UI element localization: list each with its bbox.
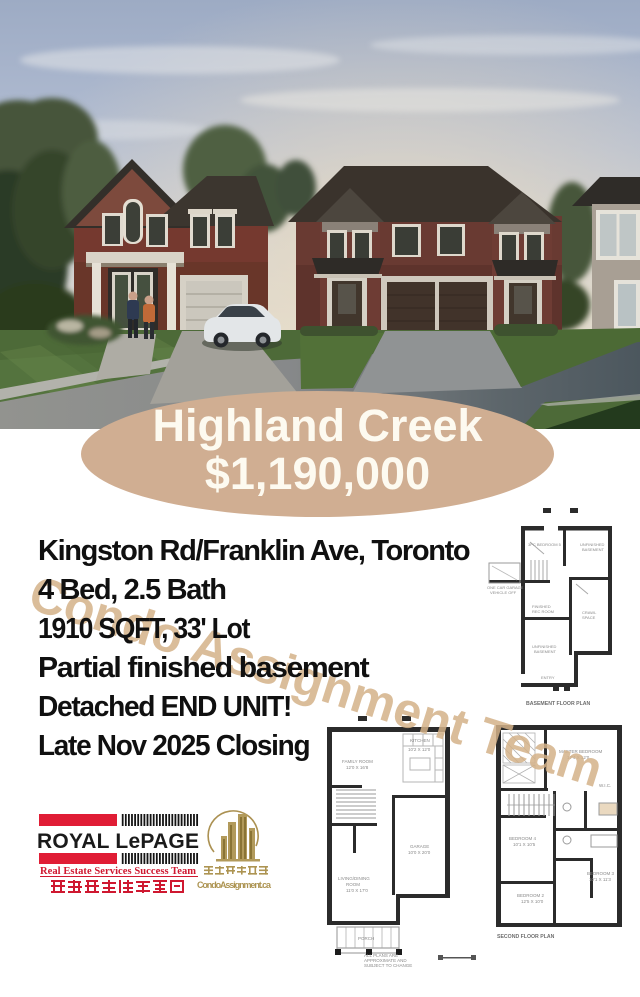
svg-text:ROOM: ROOM	[346, 882, 360, 887]
svg-text:11'0 X 17'0: 11'0 X 17'0	[346, 888, 368, 893]
svg-text:BEDROOM 2: BEDROOM 2	[517, 893, 545, 898]
svg-text:10'1 X 10'5: 10'1 X 10'5	[513, 842, 536, 847]
svg-text:PORCH: PORCH	[358, 936, 374, 941]
svg-text:CondoAssignment.ca: CondoAssignment.ca	[197, 880, 272, 890]
svg-text:12'5 X 10'0: 12'5 X 10'0	[521, 899, 544, 904]
svg-text:10'1 X 11'3: 10'1 X 11'3	[589, 877, 611, 882]
svg-text:ROYAL LePAGE: ROYAL LePAGE	[37, 830, 199, 853]
svg-text:3PC BEDROOM 5: 3PC BEDROOM 5	[528, 542, 562, 547]
svg-text:SPACE: SPACE	[582, 615, 596, 620]
svg-text:VEHICLE OFF: VEHICLE OFF	[490, 590, 517, 595]
svg-text:SECOND FLOOR PLAN: SECOND FLOOR PLAN	[497, 934, 555, 940]
svg-text:GARAGE: GARAGE	[410, 844, 429, 849]
svg-text:SUBJECT TO CHANGE: SUBJECT TO CHANGE	[364, 963, 412, 968]
svg-text:REC ROOM: REC ROOM	[532, 609, 554, 614]
svg-text:BASEMENT: BASEMENT	[582, 547, 605, 552]
svg-text:BASEMENT: BASEMENT	[534, 649, 557, 654]
svg-text:ENTRY: ENTRY	[541, 675, 555, 680]
svg-text:10'0 X 20'0: 10'0 X 20'0	[408, 850, 431, 855]
svg-text:Real Estate Services Success T: Real Estate Services Success Team	[40, 866, 196, 877]
svg-text:LIVING/DINING: LIVING/DINING	[338, 876, 370, 881]
svg-text:BEDROOM 3: BEDROOM 3	[587, 871, 615, 876]
svg-text:BEDROOM 4: BEDROOM 4	[509, 836, 537, 841]
